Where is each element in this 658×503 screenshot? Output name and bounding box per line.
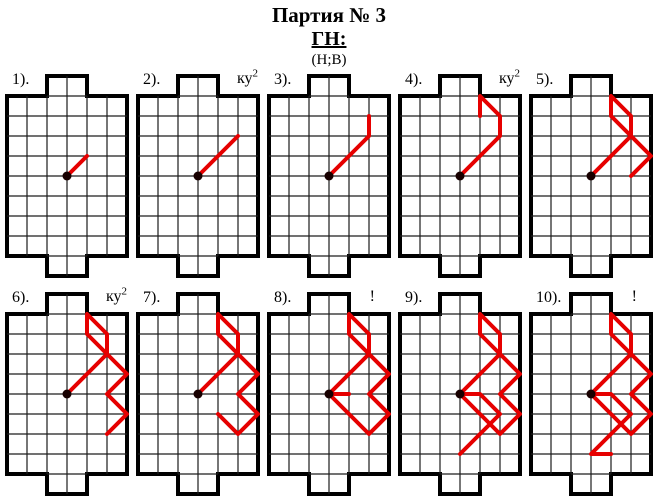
field-svg [3, 72, 131, 280]
kickoff-dot [587, 172, 596, 181]
field-svg [396, 72, 524, 280]
kickoff-dot [63, 172, 72, 181]
kickoff-dot [194, 172, 203, 181]
field-svg [396, 290, 524, 498]
game-board-2: 2).ку2 [134, 70, 264, 282]
field-svg [265, 290, 393, 498]
kickoff-dot [456, 172, 465, 181]
page: Партия № 3 ГН: (Н;В) 1).2).ку23).4).ку25… [0, 0, 658, 503]
field-svg [3, 290, 131, 498]
game-board-3: 3). [265, 70, 395, 282]
kickoff-dot [587, 390, 596, 399]
game-board-10: 10).! [527, 288, 657, 500]
kickoff-dot [63, 390, 72, 399]
game-board-1: 1). [3, 70, 133, 282]
kickoff-dot [456, 390, 465, 399]
field-svg [527, 290, 655, 498]
field-svg [134, 72, 262, 280]
game-heading: ГН: [0, 28, 658, 51]
field-svg [527, 72, 655, 280]
game-board-5: 5). [527, 70, 657, 282]
game-board-9: 9). [396, 288, 526, 500]
field-svg [265, 72, 393, 280]
game-board-4: 4).ку2 [396, 70, 526, 282]
kickoff-dot [194, 390, 203, 399]
players-label: (Н;В) [0, 52, 658, 69]
game-board-7: 7). [134, 288, 264, 500]
game-board-8: 8).! [265, 288, 395, 500]
kickoff-dot [325, 390, 334, 399]
page-title: Партия № 3 [0, 3, 658, 28]
game-board-6: 6).ку2 [3, 288, 133, 500]
kickoff-dot [325, 172, 334, 181]
field-svg [134, 290, 262, 498]
